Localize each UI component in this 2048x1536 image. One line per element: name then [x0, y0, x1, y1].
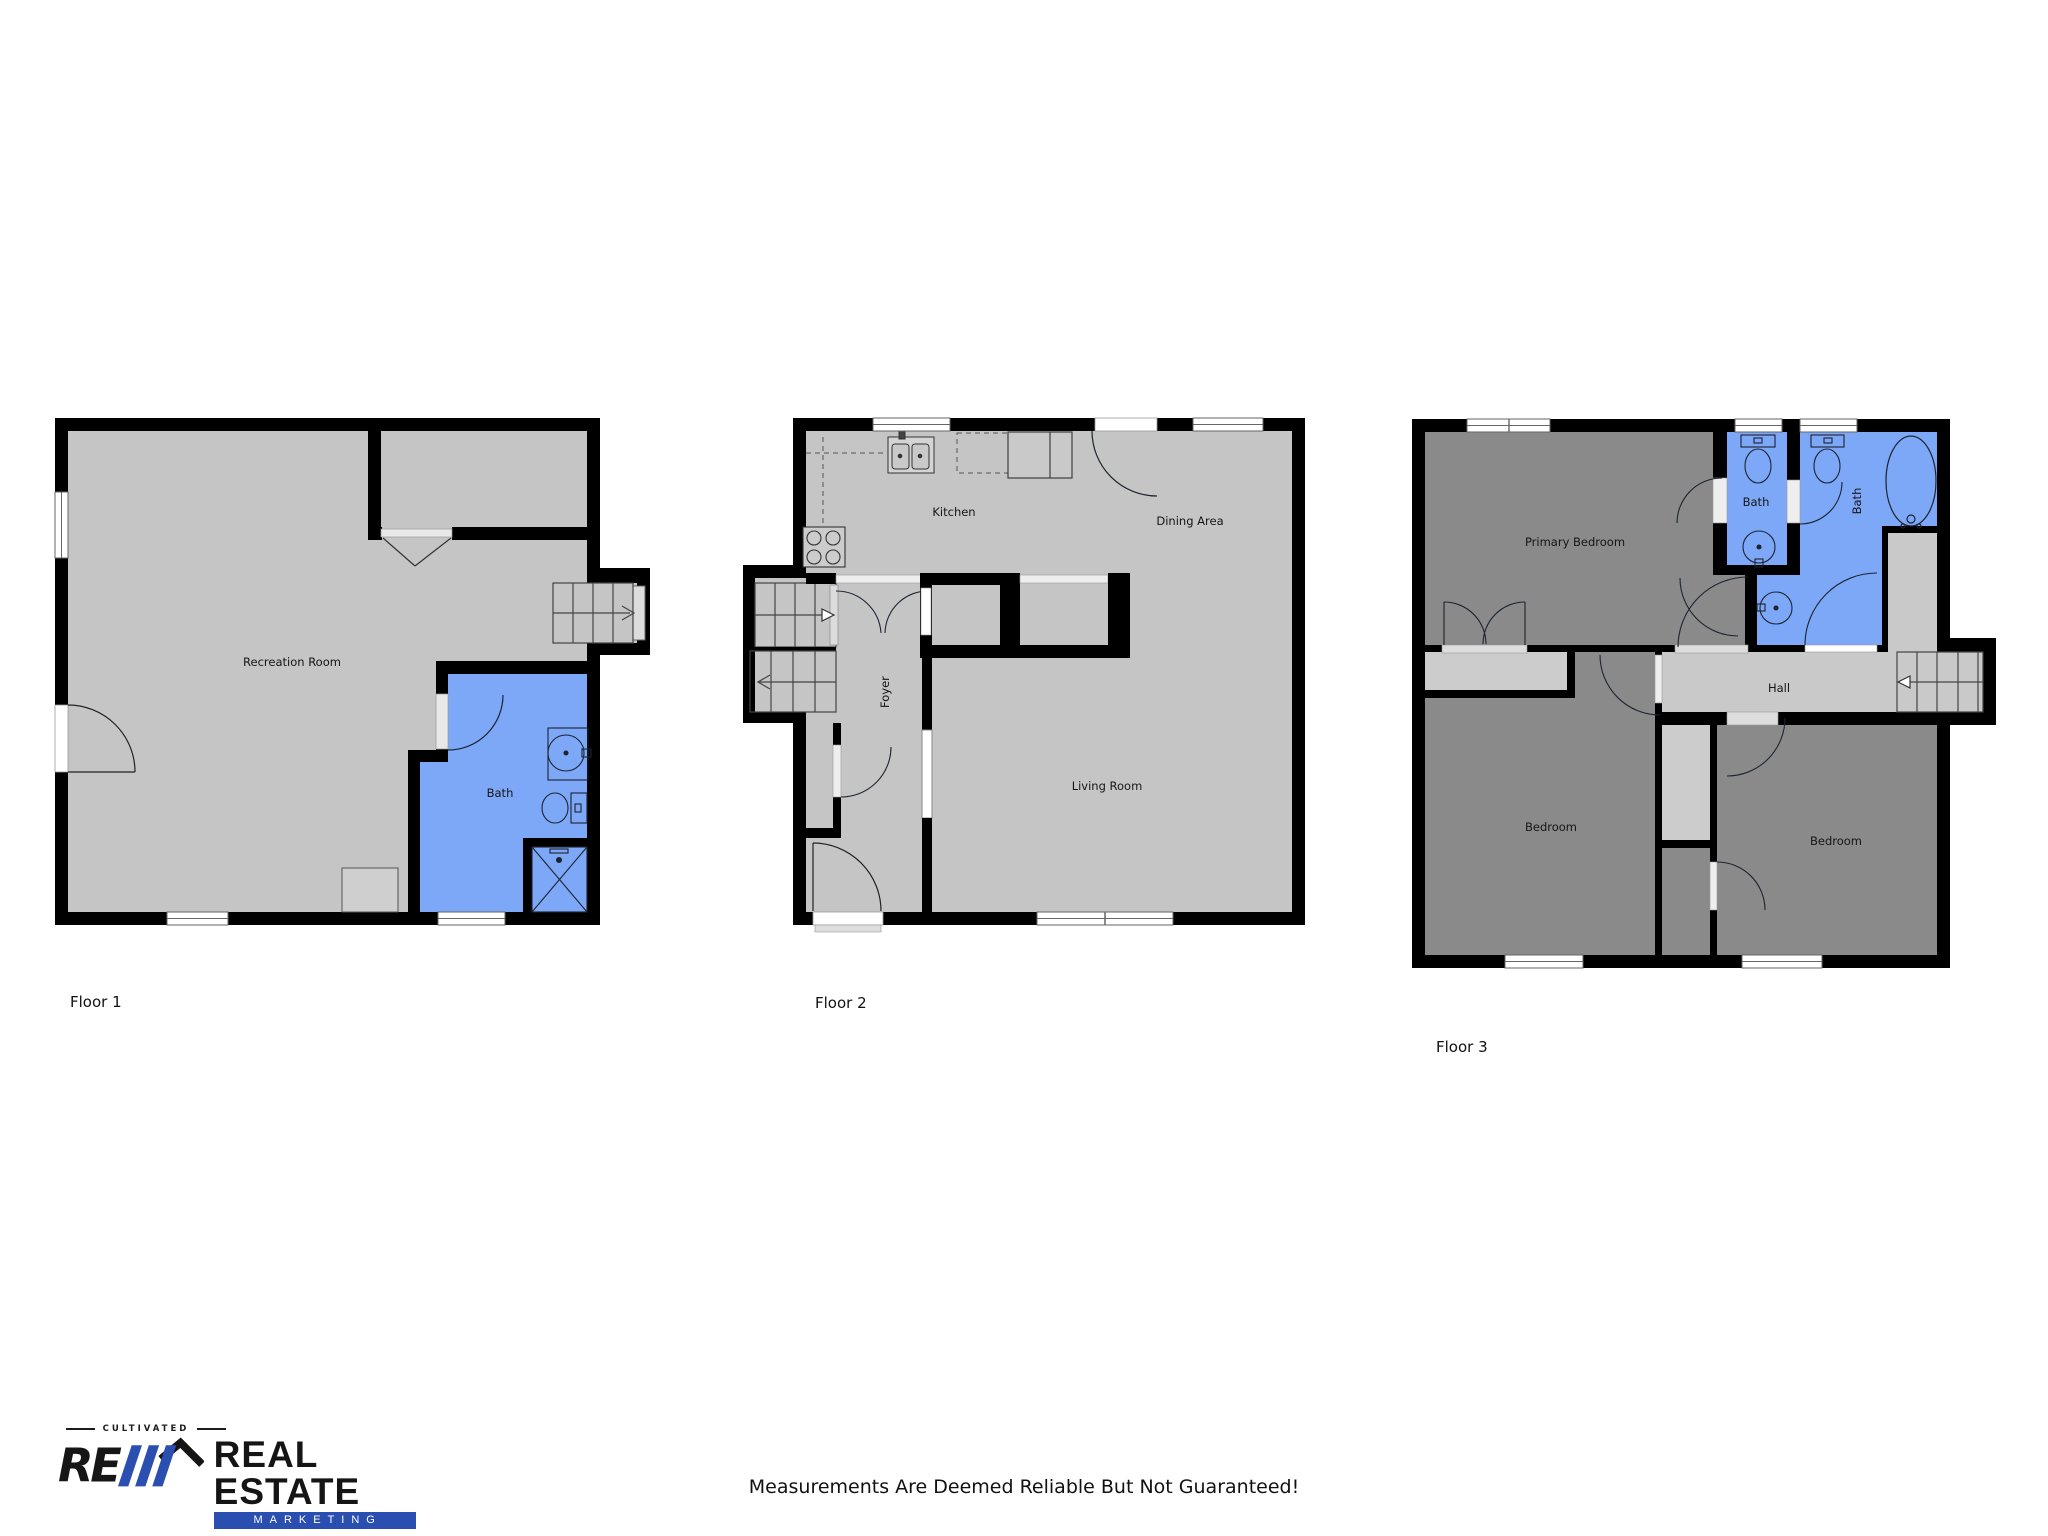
floor3-label: Floor 3 — [1436, 1038, 1488, 1056]
logo-name-line1: REAL ESTATE — [214, 1436, 438, 1510]
window — [1467, 419, 1550, 432]
floor3-plan: Primary Bedroom Bath Bath Hall Bedroom B… — [1412, 419, 1996, 968]
room-label-hall: Hall — [1768, 681, 1790, 695]
window — [1800, 419, 1857, 432]
disclaimer-text: Measurements Are Deemed Reliable But Not… — [0, 1476, 2048, 1498]
primary-closet — [1425, 652, 1567, 690]
logo-name-line2: MARKETING — [214, 1512, 416, 1529]
window — [167, 912, 228, 925]
refrigerator — [1008, 432, 1072, 478]
window — [1193, 418, 1263, 431]
closet-sliding-opening — [1020, 575, 1108, 583]
room-label-bath-floor1: Bath — [487, 786, 514, 800]
window — [873, 418, 950, 431]
window — [1735, 419, 1782, 432]
room-label-primary-bedroom: Primary Bedroom — [1525, 535, 1625, 549]
room-label-dining: Dining Area — [1156, 514, 1223, 528]
floor2-plan: Kitchen Dining Area Living Room Foyer — [743, 418, 1305, 932]
bedroom-closet — [1662, 725, 1710, 840]
stove — [803, 527, 845, 567]
room-label-recreation: Recreation Room — [243, 655, 341, 669]
room-kitchen-dining-living — [806, 431, 1292, 912]
window — [55, 492, 68, 558]
cabinet — [342, 868, 398, 912]
linen-nook — [1888, 533, 1937, 645]
double-window — [1037, 912, 1173, 925]
room-label-foyer: Foyer — [878, 676, 892, 708]
bath2-vanity-nook — [1757, 575, 1800, 645]
room-label-bedroom1: Bedroom — [1525, 820, 1577, 834]
floorplan-canvas: Recreation Room Bath — [0, 0, 2048, 1536]
floor1-plan: Recreation Room Bath — [55, 418, 650, 925]
logo-tagline: CULTIVATED — [66, 1424, 226, 1434]
room-label-kitchen: Kitchen — [932, 505, 975, 519]
foyer-living-opening — [922, 730, 932, 818]
floor1-label: Floor 1 — [70, 993, 122, 1011]
floor2-label: Floor 2 — [815, 994, 867, 1012]
room-label-bedroom2: Bedroom — [1810, 834, 1862, 848]
window — [438, 912, 505, 925]
room-label-bath1: Bath — [1743, 495, 1770, 509]
room-label-bath2: Bath — [1850, 488, 1864, 515]
bedroom2-nook — [1662, 848, 1710, 955]
logo-tagline-text: CULTIVATED — [103, 1424, 190, 1434]
room-label-living: Living Room — [1072, 779, 1143, 793]
window — [1505, 955, 1583, 968]
closet-door-opening — [921, 588, 931, 635]
window — [1742, 955, 1822, 968]
